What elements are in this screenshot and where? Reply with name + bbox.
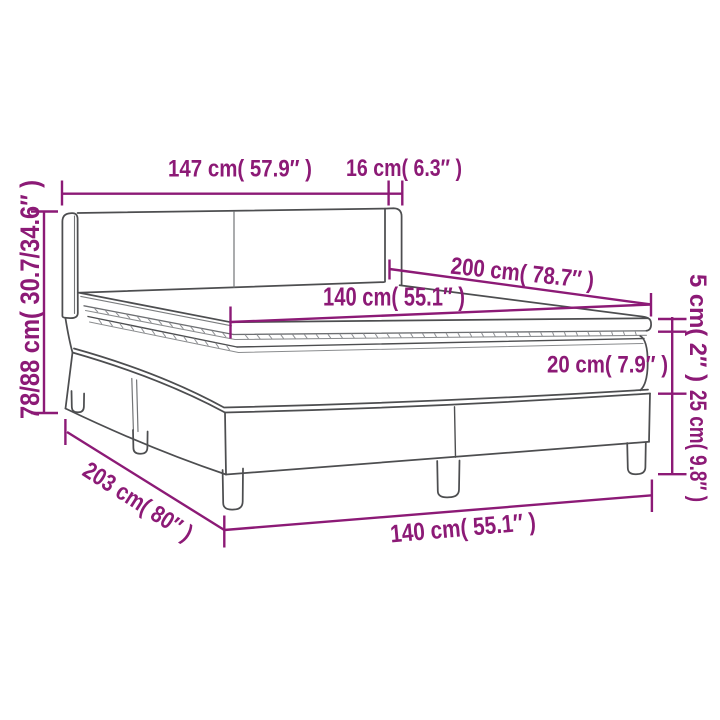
svg-text:147 cm( 57.9″ ): 147 cm( 57.9″ ) (168, 156, 312, 183)
svg-text:25 cm( 9.8″ ): 25 cm( 9.8″ ) (684, 390, 711, 502)
svg-text:78/88 cm( 30.7/34.6″ ): 78/88 cm( 30.7/34.6″ ) (15, 180, 45, 419)
svg-text:5 cm( 2″ ): 5 cm( 2″ ) (684, 274, 711, 382)
svg-text:20 cm( 7.9″ ): 20 cm( 7.9″ ) (547, 352, 668, 379)
svg-text:16 cm( 6.3″ ): 16 cm( 6.3″ ) (346, 155, 462, 182)
svg-text:140 cm( 55.1″ ): 140 cm( 55.1″ ) (323, 282, 465, 312)
